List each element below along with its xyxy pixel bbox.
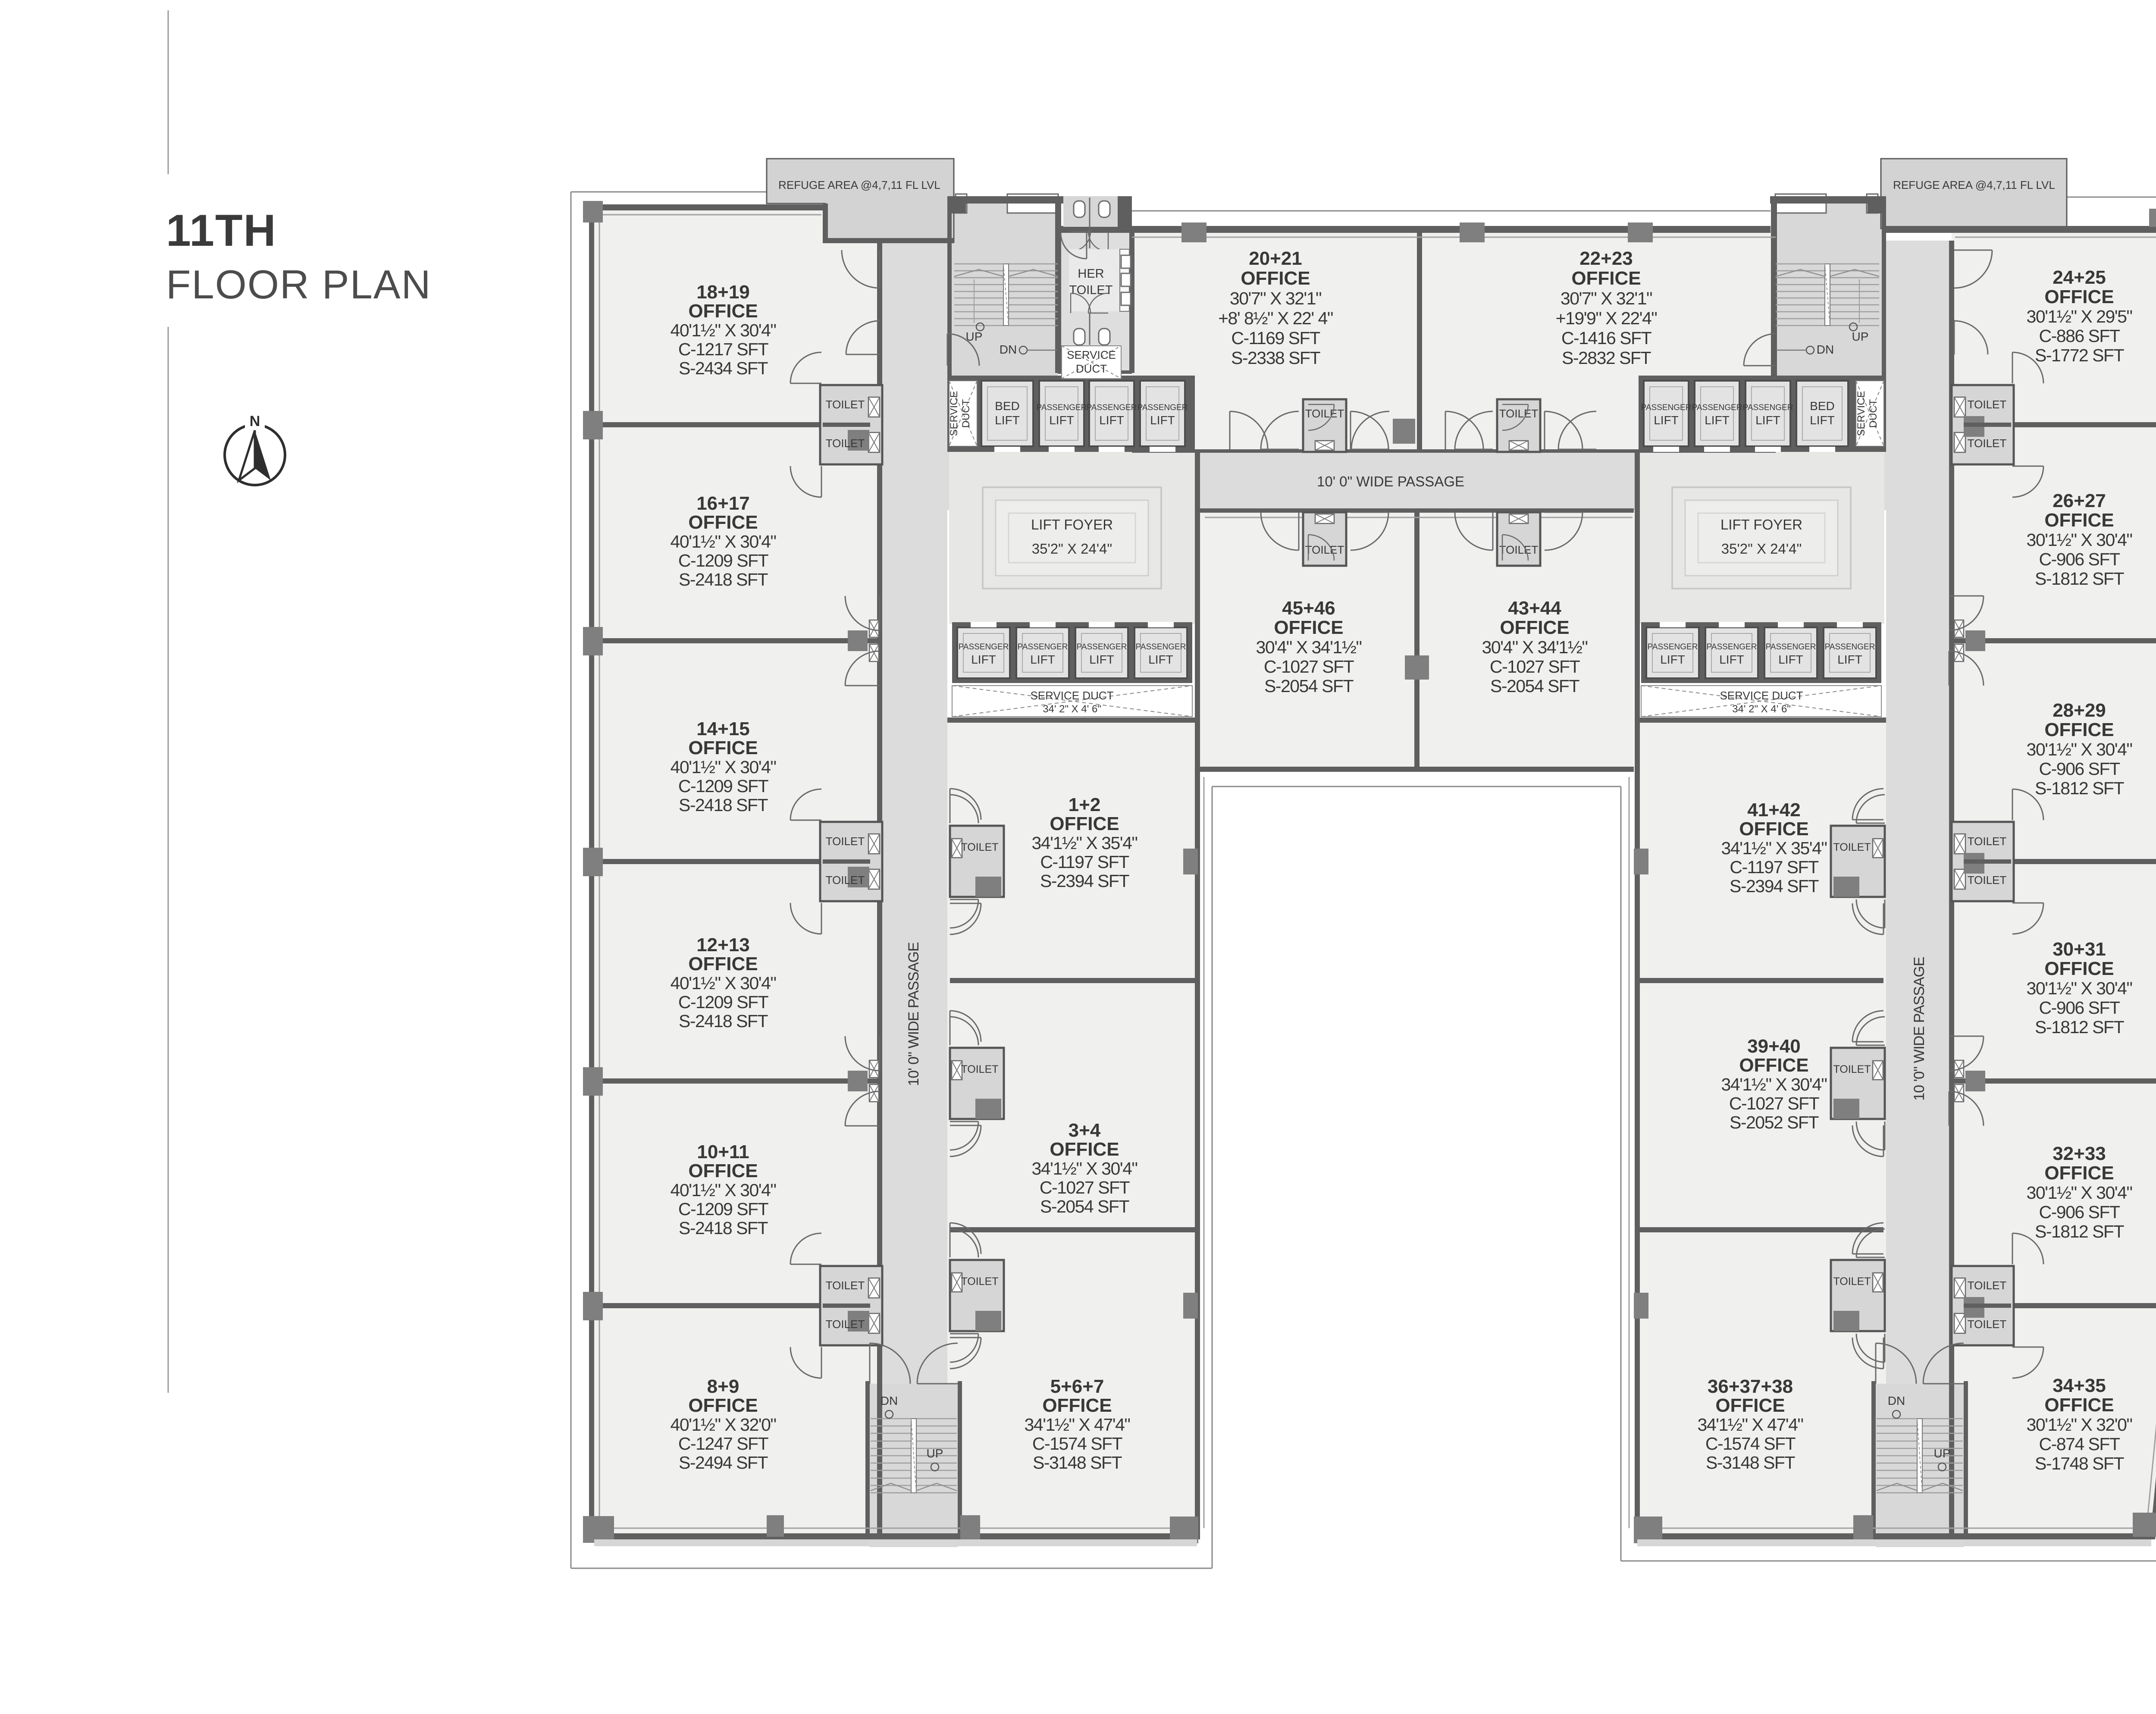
svg-text:34'1½" X 35'4": 34'1½" X 35'4" xyxy=(1032,833,1138,853)
svg-text:C-874 SFT: C-874 SFT xyxy=(2039,1434,2120,1454)
svg-text:LIFT: LIFT xyxy=(1837,653,1862,666)
svg-text:SERVICE DUCT: SERVICE DUCT xyxy=(1030,689,1113,702)
svg-text:DN: DN xyxy=(881,1394,898,1407)
svg-text:34'1½" X 35'4": 34'1½" X 35'4" xyxy=(1721,838,1827,858)
svg-text:S-2052 SFT: S-2052 SFT xyxy=(1730,1112,1819,1132)
svg-text:C-1209 SFT: C-1209 SFT xyxy=(678,992,769,1012)
svg-text:10+11: 10+11 xyxy=(697,1141,749,1163)
svg-text:C-906 SFT: C-906 SFT xyxy=(2039,549,2120,569)
svg-text:PASSENGER: PASSENGER xyxy=(1077,642,1127,652)
svg-text:+8' 8½" X 22' 4": +8' 8½" X 22' 4" xyxy=(1218,308,1333,328)
svg-text:LIFT: LIFT xyxy=(1719,653,1744,666)
svg-text:C-1209 SFT: C-1209 SFT xyxy=(678,776,769,796)
svg-text:OFFICE: OFFICE xyxy=(2044,510,2114,531)
svg-text:SERVICE DUCT: SERVICE DUCT xyxy=(1720,689,1803,702)
svg-text:1+2: 1+2 xyxy=(1069,794,1101,815)
svg-text:11TH: 11TH xyxy=(166,206,277,256)
svg-text:TOILET: TOILET xyxy=(1069,283,1113,297)
svg-text:TOILET: TOILET xyxy=(826,874,865,887)
svg-text:OFFICE: OFFICE xyxy=(2044,1163,2114,1184)
svg-text:TOILET: TOILET xyxy=(826,1318,865,1331)
svg-text:45+46: 45+46 xyxy=(1282,598,1335,619)
svg-text:40'1½" X 30'4": 40'1½" X 30'4" xyxy=(671,757,776,777)
svg-text:DN: DN xyxy=(1888,1394,1905,1407)
svg-text:LIFT FOYER: LIFT FOYER xyxy=(1720,517,1802,533)
svg-text:36+37+38: 36+37+38 xyxy=(1708,1376,1793,1397)
svg-text:TOILET: TOILET xyxy=(826,835,865,848)
svg-text:34' 2" X 4' 6": 34' 2" X 4' 6" xyxy=(1043,703,1101,715)
svg-text:40'1½" X 32'0": 40'1½" X 32'0" xyxy=(671,1415,776,1435)
svg-text:TOILET: TOILET xyxy=(826,398,865,411)
svg-text:S-2338 SFT: S-2338 SFT xyxy=(1231,348,1320,368)
svg-text:34'1½" X 47'4": 34'1½" X 47'4" xyxy=(1698,1415,1803,1435)
svg-text:32+33: 32+33 xyxy=(2053,1143,2106,1164)
svg-text:S-1812 SFT: S-1812 SFT xyxy=(2035,1222,2124,1241)
svg-text:N: N xyxy=(250,413,260,429)
svg-text:30+31: 30+31 xyxy=(2053,939,2106,960)
svg-text:TOILET: TOILET xyxy=(1499,543,1539,556)
svg-text:5+6+7: 5+6+7 xyxy=(1050,1376,1104,1397)
svg-text:S-2494 SFT: S-2494 SFT xyxy=(679,1453,768,1473)
svg-text:PASSENGER: PASSENGER xyxy=(1138,403,1188,412)
svg-text:LIFT: LIFT xyxy=(1810,414,1835,427)
svg-text:OFFICE: OFFICE xyxy=(1739,818,1808,840)
svg-text:TOILET: TOILET xyxy=(1968,835,2007,848)
svg-text:TOILET: TOILET xyxy=(826,437,865,450)
svg-text:22+23: 22+23 xyxy=(1579,248,1633,269)
svg-text:OFFICE: OFFICE xyxy=(2044,719,2114,740)
svg-text:OFFICE: OFFICE xyxy=(1050,813,1119,834)
svg-text:34+35: 34+35 xyxy=(2053,1375,2106,1396)
svg-text:S-2832 SFT: S-2832 SFT xyxy=(1562,348,1651,368)
svg-text:UP: UP xyxy=(927,1447,943,1460)
svg-text:TOILET: TOILET xyxy=(1968,1279,2007,1292)
svg-text:TOILET: TOILET xyxy=(1833,841,1871,853)
svg-text:LIFT: LIFT xyxy=(1049,414,1074,427)
svg-text:DN: DN xyxy=(1000,343,1017,356)
svg-text:S-2054 SFT: S-2054 SFT xyxy=(1490,676,1579,696)
svg-text:34'1½" X 30'4": 34'1½" X 30'4" xyxy=(1721,1075,1827,1094)
svg-text:LIFT: LIFT xyxy=(1089,653,1114,666)
svg-text:BED: BED xyxy=(995,399,1020,413)
svg-text:41+42: 41+42 xyxy=(1747,799,1801,821)
svg-text:DUCT: DUCT xyxy=(960,399,972,428)
svg-text:DUCT: DUCT xyxy=(1868,399,1879,428)
svg-text:26+27: 26+27 xyxy=(2053,490,2106,511)
svg-text:S-1772 SFT: S-1772 SFT xyxy=(2035,345,2124,365)
svg-text:C-1209 SFT: C-1209 SFT xyxy=(678,551,769,570)
svg-text:C-1416 SFT: C-1416 SFT xyxy=(1561,328,1652,348)
svg-text:TOILET: TOILET xyxy=(826,1279,865,1292)
svg-text:OFFICE: OFFICE xyxy=(688,1160,758,1181)
svg-text:LIFT: LIFT xyxy=(1148,653,1173,666)
svg-text:HER: HER xyxy=(1078,267,1104,281)
svg-text:TOILET: TOILET xyxy=(961,1275,998,1288)
svg-text:C-1197 SFT: C-1197 SFT xyxy=(1040,852,1129,872)
svg-text:PASSENGER: PASSENGER xyxy=(959,642,1009,652)
svg-text:S-2394 SFT: S-2394 SFT xyxy=(1040,871,1129,891)
svg-text:PASSENGER: PASSENGER xyxy=(1766,642,1816,652)
svg-text:40'1½" X 30'4": 40'1½" X 30'4" xyxy=(671,1180,776,1200)
svg-text:C-1574 SFT: C-1574 SFT xyxy=(1032,1434,1123,1454)
svg-text:C-1027 SFT: C-1027 SFT xyxy=(1264,657,1354,677)
svg-text:40'1½" X 30'4": 40'1½" X 30'4" xyxy=(671,320,776,340)
svg-text:PASSENGER: PASSENGER xyxy=(1018,642,1068,652)
svg-text:OFFICE: OFFICE xyxy=(1274,617,1343,638)
svg-text:30'7" X 32'1": 30'7" X 32'1" xyxy=(1230,288,1321,308)
svg-text:LIFT: LIFT xyxy=(1030,653,1055,666)
svg-text:S-2418 SFT: S-2418 SFT xyxy=(679,1011,768,1031)
svg-text:30'1½" X 32'0": 30'1½" X 32'0" xyxy=(2027,1415,2132,1435)
svg-text:OFFICE: OFFICE xyxy=(688,953,758,975)
svg-text:C-1027 SFT: C-1027 SFT xyxy=(1729,1094,1820,1113)
svg-text:10' 0" WIDE PASSAGE: 10' 0" WIDE PASSAGE xyxy=(906,942,922,1086)
svg-text:TOILET: TOILET xyxy=(1305,543,1344,556)
svg-text:OFFICE: OFFICE xyxy=(1571,268,1641,289)
svg-text:40'1½" X 30'4": 40'1½" X 30'4" xyxy=(671,532,776,551)
svg-text:C-1209 SFT: C-1209 SFT xyxy=(678,1199,769,1219)
svg-text:OFFICE: OFFICE xyxy=(688,1395,758,1416)
svg-text:10 '0" WIDE PASSAGE: 10 '0" WIDE PASSAGE xyxy=(1911,957,1927,1101)
svg-text:PASSENGER: PASSENGER xyxy=(1825,642,1875,652)
svg-text:TOILET: TOILET xyxy=(1968,437,2007,450)
svg-text:C-906 SFT: C-906 SFT xyxy=(2039,759,2120,779)
svg-text:30'4" X 34'1½": 30'4" X 34'1½" xyxy=(1482,637,1588,657)
svg-text:OFFICE: OFFICE xyxy=(1500,617,1569,638)
svg-text:24+25: 24+25 xyxy=(2053,267,2106,288)
svg-text:LIFT FOYER: LIFT FOYER xyxy=(1031,517,1113,533)
svg-text:30'1½" X 30'4": 30'1½" X 30'4" xyxy=(2027,978,2132,998)
svg-text:C-906 SFT: C-906 SFT xyxy=(2039,998,2120,1018)
svg-text:34'1½" X 47'4": 34'1½" X 47'4" xyxy=(1025,1415,1130,1435)
svg-text:PASSENGER: PASSENGER xyxy=(1648,642,1698,652)
svg-text:S-3148 SFT: S-3148 SFT xyxy=(1033,1453,1122,1473)
svg-text:C-1027 SFT: C-1027 SFT xyxy=(1040,1178,1130,1197)
svg-text:S-2418 SFT: S-2418 SFT xyxy=(679,570,768,589)
svg-text:S-1812 SFT: S-1812 SFT xyxy=(2035,569,2124,589)
svg-text:LIFT: LIFT xyxy=(971,653,996,666)
svg-text:OFFICE: OFFICE xyxy=(688,301,758,322)
svg-text:TOILET: TOILET xyxy=(1968,874,2007,887)
svg-text:18+19: 18+19 xyxy=(696,282,750,303)
svg-text:30'1½" X 30'4": 30'1½" X 30'4" xyxy=(2027,1183,2132,1203)
svg-text:30'4" X 34'1½": 30'4" X 34'1½" xyxy=(1256,637,1362,657)
svg-text:10' 0" WIDE PASSAGE: 10' 0" WIDE PASSAGE xyxy=(1317,473,1464,489)
svg-text:OFFICE: OFFICE xyxy=(688,737,758,758)
svg-text:TOILET: TOILET xyxy=(1833,1063,1871,1075)
svg-text:S-2418 SFT: S-2418 SFT xyxy=(679,795,768,815)
svg-text:UP: UP xyxy=(1852,330,1869,343)
svg-text:PASSENGER: PASSENGER xyxy=(1087,403,1137,412)
svg-text:14+15: 14+15 xyxy=(696,718,750,739)
svg-text:TOILET: TOILET xyxy=(1968,1318,2007,1331)
svg-text:TOILET: TOILET xyxy=(1968,398,2007,411)
svg-text:TOILET: TOILET xyxy=(1305,407,1344,420)
svg-text:OFFICE: OFFICE xyxy=(2044,958,2114,979)
svg-text:TOILET: TOILET xyxy=(1833,1275,1871,1288)
svg-text:S-2418 SFT: S-2418 SFT xyxy=(679,1218,768,1238)
svg-text:LIFT: LIFT xyxy=(1660,653,1685,666)
svg-text:FLOOR PLAN: FLOOR PLAN xyxy=(166,262,432,307)
svg-text:TOILET: TOILET xyxy=(961,841,998,853)
svg-text:LIFT: LIFT xyxy=(1150,414,1175,427)
svg-text:DUCT: DUCT xyxy=(1076,362,1107,375)
svg-text:OFFICE: OFFICE xyxy=(688,512,758,533)
svg-text:30'1½" X 30'4": 30'1½" X 30'4" xyxy=(2027,530,2132,550)
svg-text:34'1½" X 30'4": 34'1½" X 30'4" xyxy=(1032,1159,1138,1178)
svg-text:S-2054 SFT: S-2054 SFT xyxy=(1264,676,1354,696)
svg-text:SERVICE: SERVICE xyxy=(1855,391,1867,436)
svg-text:C-906 SFT: C-906 SFT xyxy=(2039,1202,2120,1222)
svg-text:REFUGE AREA @4,7,11 FL LVL: REFUGE AREA @4,7,11 FL LVL xyxy=(778,179,940,191)
svg-text:35'2" X 24'4": 35'2" X 24'4" xyxy=(1721,541,1802,557)
svg-text:LIFT: LIFT xyxy=(1705,414,1730,427)
svg-text:16+17: 16+17 xyxy=(696,493,750,514)
svg-text:PASSENGER: PASSENGER xyxy=(1136,642,1186,652)
svg-text:LIFT: LIFT xyxy=(995,414,1020,427)
svg-text:12+13: 12+13 xyxy=(696,934,750,956)
svg-text:3+4: 3+4 xyxy=(1069,1120,1101,1141)
svg-text:30'1½" X 30'4": 30'1½" X 30'4" xyxy=(2027,739,2132,759)
svg-text:S-1812 SFT: S-1812 SFT xyxy=(2035,1017,2124,1037)
svg-text:S-2434 SFT: S-2434 SFT xyxy=(679,358,768,378)
svg-text:TOILET: TOILET xyxy=(1499,407,1539,420)
svg-text:PASSENGER: PASSENGER xyxy=(1707,642,1757,652)
svg-text:C-886 SFT: C-886 SFT xyxy=(2039,326,2120,346)
svg-text:LIFT: LIFT xyxy=(1099,414,1124,427)
svg-text:39+40: 39+40 xyxy=(1747,1036,1801,1057)
svg-text:35'2" X 24'4": 35'2" X 24'4" xyxy=(1032,541,1112,557)
svg-text:SERVICE: SERVICE xyxy=(1067,348,1116,361)
svg-text:OFFICE: OFFICE xyxy=(2044,286,2114,307)
svg-text:30'1½" X 29'5": 30'1½" X 29'5" xyxy=(2027,307,2132,326)
svg-text:OFFICE: OFFICE xyxy=(1715,1395,1785,1416)
svg-text:28+29: 28+29 xyxy=(2053,700,2106,721)
svg-text:LIFT: LIFT xyxy=(1654,414,1679,427)
svg-text:S-3148 SFT: S-3148 SFT xyxy=(1706,1453,1795,1473)
svg-text:PASSENGER: PASSENGER xyxy=(1692,403,1742,412)
svg-text:OFFICE: OFFICE xyxy=(1050,1139,1119,1160)
svg-text:OFFICE: OFFICE xyxy=(1739,1055,1808,1076)
svg-text:S-2394 SFT: S-2394 SFT xyxy=(1730,876,1819,896)
svg-text:LIFT: LIFT xyxy=(1778,653,1803,666)
svg-text:SERVICE: SERVICE xyxy=(948,391,960,436)
svg-text:C-1574 SFT: C-1574 SFT xyxy=(1705,1434,1796,1454)
svg-text:C-1197 SFT: C-1197 SFT xyxy=(1730,857,1819,877)
svg-text:PASSENGER: PASSENGER xyxy=(1037,403,1087,412)
svg-text:OFFICE: OFFICE xyxy=(2044,1394,2114,1416)
svg-text:+19'9" X 22'4": +19'9" X 22'4" xyxy=(1556,308,1657,328)
svg-text:PASSENGER: PASSENGER xyxy=(1743,403,1793,412)
svg-text:PASSENGER: PASSENGER xyxy=(1641,403,1692,412)
svg-text:LIFT: LIFT xyxy=(1755,414,1780,427)
svg-text:S-2054 SFT: S-2054 SFT xyxy=(1040,1197,1129,1216)
svg-text:C-1217 SFT: C-1217 SFT xyxy=(678,339,769,359)
svg-text:20+21: 20+21 xyxy=(1249,248,1302,269)
svg-text:43+44: 43+44 xyxy=(1508,598,1561,619)
svg-text:REFUGE AREA @4,7,11 FL LVL: REFUGE AREA @4,7,11 FL LVL xyxy=(1893,179,2055,191)
svg-text:30'7" X 32'1": 30'7" X 32'1" xyxy=(1561,288,1652,308)
svg-text:UP: UP xyxy=(1934,1447,1951,1460)
svg-text:OFFICE: OFFICE xyxy=(1042,1395,1112,1416)
svg-text:C-1247 SFT: C-1247 SFT xyxy=(678,1434,769,1454)
svg-text:BED: BED xyxy=(1810,399,1835,413)
svg-text:TOILET: TOILET xyxy=(961,1063,998,1075)
svg-text:40'1½" X 30'4": 40'1½" X 30'4" xyxy=(671,973,776,993)
svg-text:OFFICE: OFFICE xyxy=(1241,268,1310,289)
svg-text:S-1812 SFT: S-1812 SFT xyxy=(2035,778,2124,798)
svg-text:S-1748 SFT: S-1748 SFT xyxy=(2035,1454,2124,1473)
svg-text:C-1027 SFT: C-1027 SFT xyxy=(1490,657,1580,677)
svg-text:C-1169 SFT: C-1169 SFT xyxy=(1231,328,1320,348)
svg-text:34' 2" X 4' 6": 34' 2" X 4' 6" xyxy=(1732,703,1791,715)
svg-text:8+9: 8+9 xyxy=(707,1376,740,1397)
svg-text:DN: DN xyxy=(1817,343,1834,356)
